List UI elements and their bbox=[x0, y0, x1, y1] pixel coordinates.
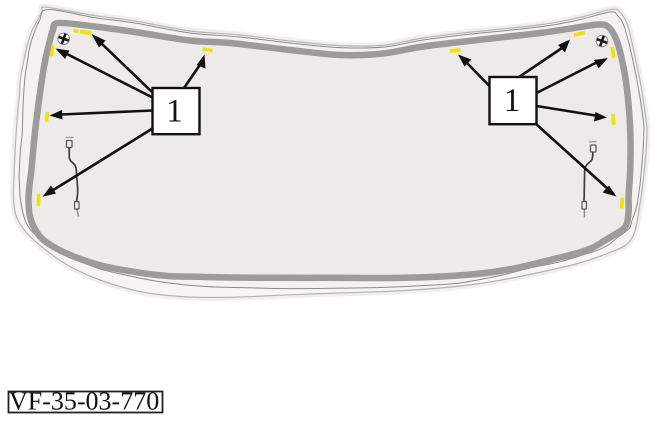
svg-text:1: 1 bbox=[166, 94, 183, 130]
svg-text:1: 1 bbox=[504, 83, 521, 119]
svg-text:VF-35-03-770: VF-35-03-770 bbox=[9, 387, 159, 416]
